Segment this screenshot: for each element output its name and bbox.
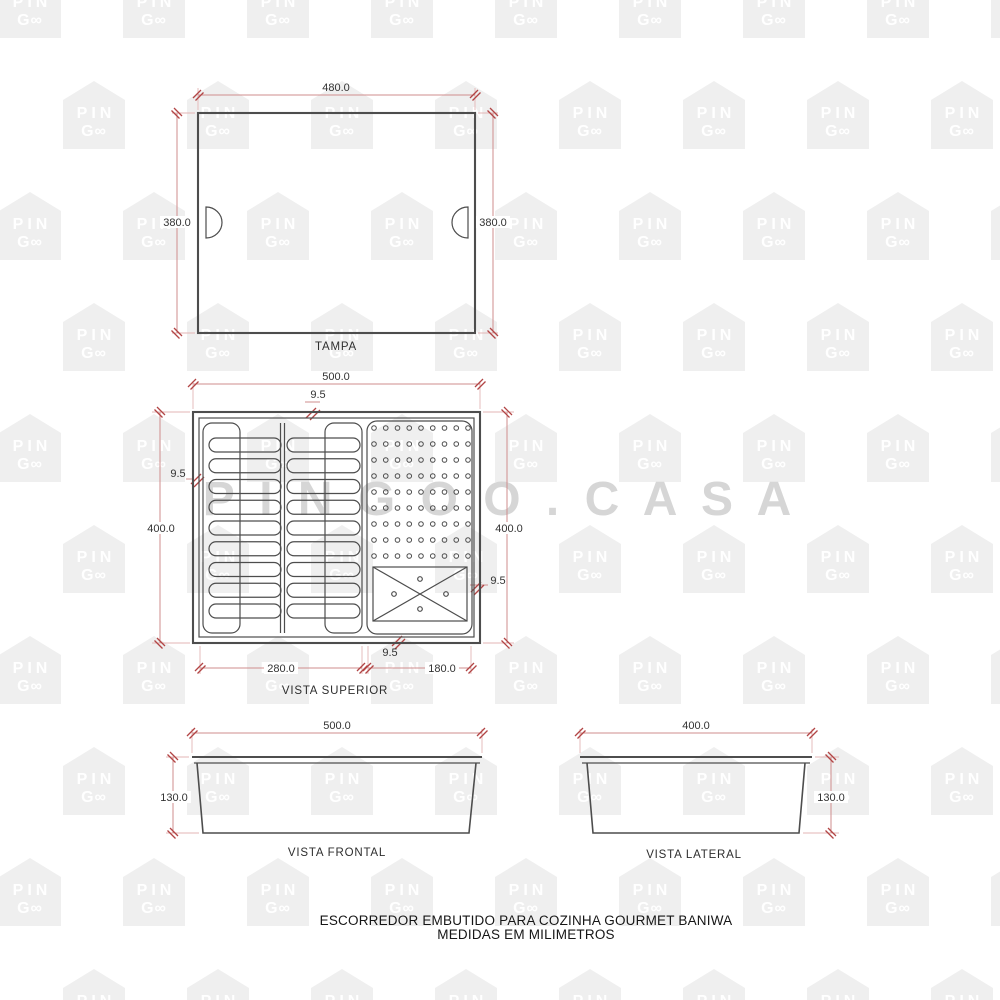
- perforation-dot: [466, 458, 471, 463]
- dim-tampa-height-right: 380.0: [479, 217, 507, 229]
- drain-slot: [287, 542, 360, 556]
- perforation-dot: [442, 458, 447, 463]
- perforation-dot: [372, 522, 377, 527]
- perforation-dot: [419, 522, 424, 527]
- perforation-dot: [383, 426, 388, 431]
- perforation-dot: [395, 522, 400, 527]
- perforation-dot: [430, 474, 435, 479]
- perforation-dot: [383, 442, 388, 447]
- perforation-dot: [372, 426, 377, 431]
- perforation-dot: [395, 538, 400, 543]
- perforation-dot: [407, 426, 412, 431]
- label-tampa: TAMPA: [315, 341, 357, 353]
- perforation-dot: [372, 506, 377, 511]
- perforation-dot: [430, 458, 435, 463]
- perforation-dot: [430, 506, 435, 511]
- drain-slot: [287, 438, 360, 452]
- dim-frontal-width: 500.0: [323, 720, 351, 732]
- drain-slot: [209, 480, 281, 494]
- perforation-dot: [466, 522, 471, 527]
- perforation-dot: [407, 522, 412, 527]
- slot-rail-right: [325, 423, 362, 633]
- perforation-dot: [442, 490, 447, 495]
- perforation-dot: [395, 554, 400, 559]
- perforation-dot: [383, 522, 388, 527]
- drain-box: [373, 567, 467, 621]
- perforation-dot: [383, 474, 388, 479]
- perforation-dot: [419, 426, 424, 431]
- perforation-dot: [466, 506, 471, 511]
- side-body: [587, 763, 805, 833]
- perforation-dot: [466, 554, 471, 559]
- dim-superior-bottom-left: 280.0: [267, 663, 295, 675]
- perforation-dot: [372, 554, 377, 559]
- perforation-dot: [395, 442, 400, 447]
- perforation-dot: [419, 474, 424, 479]
- perforation-dot: [395, 474, 400, 479]
- perforation-dot: [407, 458, 412, 463]
- front-body: [197, 763, 476, 833]
- perforation-dot: [407, 506, 412, 511]
- perforation-dot: [430, 426, 435, 431]
- dim-tampa-width: 480.0: [322, 82, 350, 94]
- view-superior: 500.0 9.5 9.5 400.0 400.0 9.5 9.5 280.0 …: [144, 371, 526, 697]
- drain-slot: [209, 500, 281, 514]
- drain-slot: [287, 604, 360, 618]
- label-vista-frontal: VISTA FRONTAL: [288, 847, 386, 859]
- perforation-dot: [442, 554, 447, 559]
- perforation-dot: [419, 506, 424, 511]
- perforation-dot: [454, 490, 459, 495]
- drain-slot: [209, 438, 281, 452]
- perforation-dot: [454, 442, 459, 447]
- perforation-dot: [430, 490, 435, 495]
- title-line2: MEDIDAS EM MILIMETROS: [26, 928, 1000, 942]
- title-line1: ESCORREDOR EMBUTIDO PARA COZINHA GOURMET…: [26, 914, 1000, 928]
- perforation-dot: [419, 442, 424, 447]
- perforation-dot: [430, 442, 435, 447]
- perforation-dot: [430, 538, 435, 543]
- perforation-dot: [383, 490, 388, 495]
- perforation-dot: [419, 458, 424, 463]
- perforation-dot: [466, 474, 471, 479]
- drain-slot: [209, 459, 281, 473]
- lid-outline: [198, 113, 475, 333]
- dim-superior-height-left: 400.0: [147, 523, 175, 535]
- drain-slot: [287, 521, 360, 535]
- perforation-dot: [430, 522, 435, 527]
- perforation-dot: [395, 490, 400, 495]
- perforation-dot: [442, 538, 447, 543]
- perforation-dot: [430, 554, 435, 559]
- view-tampa: 480.0 380.0 380.0 TAMPA: [160, 82, 510, 353]
- drain-slot: [287, 480, 360, 494]
- perforation-dot: [372, 442, 377, 447]
- perforation-dot: [442, 426, 447, 431]
- lid-handle-right: [452, 207, 468, 238]
- view-frontal: 500.0 130.0 VISTA FRONTAL: [157, 720, 482, 859]
- dim-frontal-height: 130.0: [160, 792, 188, 804]
- dim-superior-bottom-right: 180.0: [428, 663, 456, 675]
- perforation-dot: [407, 474, 412, 479]
- perforation-dot: [395, 506, 400, 511]
- drawing-svg: 480.0 380.0 380.0 TAMPA: [0, 0, 1000, 1000]
- dim-superior-wall-right: 9.5: [490, 575, 505, 587]
- dim-lateral-width: 400.0: [682, 720, 710, 732]
- view-lateral: 400.0 130.0 VISTA LATERAL: [580, 720, 848, 861]
- drain-slot: [209, 542, 281, 556]
- label-vista-lateral: VISTA LATERAL: [646, 849, 742, 861]
- drain-slot: [287, 583, 360, 597]
- perforation-dot: [372, 474, 377, 479]
- perforation-dot: [383, 506, 388, 511]
- technical-drawing-sheet: PING∞PING∞PING∞PING∞PING∞PING∞PING∞PING∞…: [0, 0, 1000, 1000]
- perforation-grid: [372, 426, 471, 559]
- perforation-dot: [466, 490, 471, 495]
- perforation-dot: [383, 554, 388, 559]
- title-block: ESCORREDOR EMBUTIDO PARA COZINHA GOURMET…: [26, 914, 1000, 941]
- perforation-dot: [383, 538, 388, 543]
- label-vista-superior: VISTA SUPERIOR: [282, 685, 388, 697]
- perforation-dot: [442, 506, 447, 511]
- lid-handle-left: [206, 207, 222, 238]
- perforation-dot: [407, 490, 412, 495]
- basin-outer-outline: [193, 412, 480, 643]
- perforation-dot: [442, 522, 447, 527]
- dim-lateral-height: 130.0: [817, 792, 845, 804]
- perforation-dot: [454, 458, 459, 463]
- perforation-dot: [419, 554, 424, 559]
- dim-superior-width: 500.0: [322, 371, 350, 383]
- perforation-dot: [407, 538, 412, 543]
- dim-superior-height-right: 400.0: [495, 523, 523, 535]
- perforation-dot: [454, 426, 459, 431]
- perforation-dot: [372, 458, 377, 463]
- drain-slot: [209, 583, 281, 597]
- drain-slot: [287, 459, 360, 473]
- perforation-dot: [442, 442, 447, 447]
- perforation-dot: [454, 522, 459, 527]
- perforation-dot: [419, 490, 424, 495]
- drain-slot: [209, 563, 281, 577]
- perforated-panel: [367, 421, 472, 634]
- perforation-dot: [466, 426, 471, 431]
- perforation-dot: [407, 442, 412, 447]
- perforation-dot: [395, 426, 400, 431]
- dim-tampa-height-left: 380.0: [163, 217, 191, 229]
- perforation-dot: [383, 458, 388, 463]
- dim-superior-wall-top: 9.5: [310, 389, 325, 401]
- perforation-dot: [454, 474, 459, 479]
- perforation-dot: [454, 538, 459, 543]
- perforation-dot: [407, 554, 412, 559]
- perforation-dot: [454, 506, 459, 511]
- perforation-dot: [419, 538, 424, 543]
- perforation-dot: [466, 442, 471, 447]
- perforation-dot: [442, 474, 447, 479]
- drain-slot: [287, 563, 360, 577]
- dim-superior-wall-bottom: 9.5: [382, 647, 397, 659]
- perforation-dot: [466, 538, 471, 543]
- drain-slot: [287, 500, 360, 514]
- drain-slot: [209, 521, 281, 535]
- perforation-dot: [372, 490, 377, 495]
- perforation-dot: [395, 458, 400, 463]
- perforation-dot: [372, 538, 377, 543]
- drain-slot: [209, 604, 281, 618]
- dim-superior-wall-left: 9.5: [170, 468, 185, 480]
- perforation-dot: [454, 554, 459, 559]
